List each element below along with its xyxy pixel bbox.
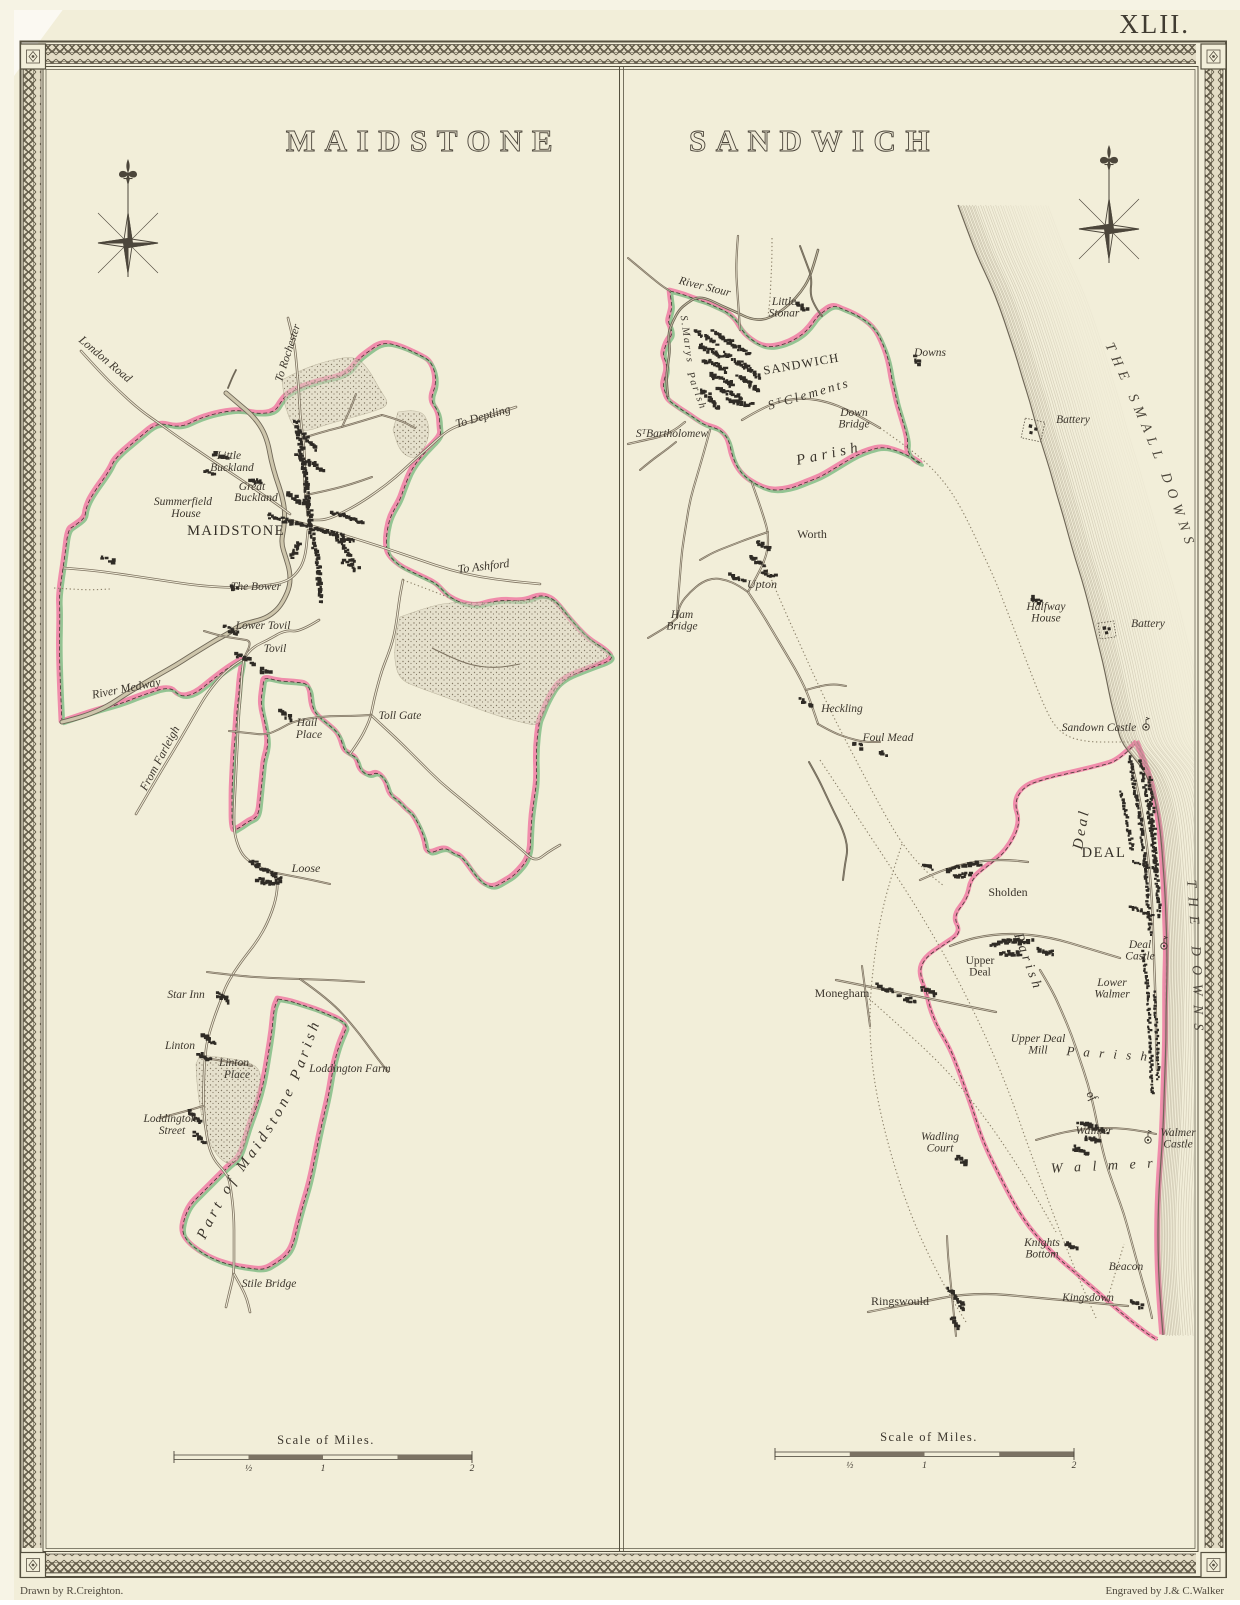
- svg-text:Drawn by R.Creighton.: Drawn by R.Creighton.: [20, 1585, 124, 1597]
- svg-text:Worth: Worth: [797, 527, 827, 541]
- svg-text:House: House: [170, 508, 200, 520]
- svg-text:1: 1: [922, 1461, 927, 1471]
- svg-text:LowerWalmer: LowerWalmer: [1094, 977, 1130, 1001]
- svg-text:HalfwayHouse: HalfwayHouse: [1026, 601, 1067, 625]
- svg-text:Tovil: Tovil: [264, 643, 287, 655]
- svg-text:WalmerCastle: WalmerCastle: [1160, 1127, 1196, 1151]
- svg-text:Heckling: Heckling: [820, 703, 863, 715]
- svg-text:Loose: Loose: [291, 861, 321, 875]
- svg-text:Downs: Downs: [913, 347, 946, 359]
- svg-text:Sholden: Sholden: [988, 885, 1027, 899]
- svg-text:Sandown Castle: Sandown Castle: [1062, 722, 1136, 734]
- svg-text:Toll Gate: Toll Gate: [379, 710, 422, 722]
- svg-text:MAIDSTONE: MAIDSTONE: [187, 523, 285, 539]
- svg-text:Little: Little: [216, 450, 241, 462]
- svg-text:2: 2: [1072, 1461, 1077, 1471]
- svg-text:Battery: Battery: [1056, 414, 1091, 426]
- svg-text:Hail: Hail: [296, 717, 317, 729]
- svg-text:SᵀBartholomew: SᵀBartholomew: [636, 428, 708, 440]
- svg-text:Monegham: Monegham: [815, 986, 870, 1000]
- svg-text:Upton: Upton: [747, 577, 777, 591]
- svg-text:DEAL: DEAL: [1082, 845, 1127, 861]
- svg-text:½: ½: [846, 1460, 853, 1471]
- svg-text:Kingsdown: Kingsdown: [1061, 1292, 1114, 1304]
- svg-text:Lower Tovil: Lower Tovil: [235, 620, 291, 632]
- svg-text:Street: Street: [159, 1125, 186, 1137]
- svg-text:HamBridge: HamBridge: [666, 609, 697, 633]
- svg-text:LittleStonar: LittleStonar: [769, 296, 800, 320]
- svg-text:XLII.: XLII.: [1119, 9, 1190, 39]
- svg-text:UpperDeal: UpperDeal: [966, 955, 995, 979]
- svg-text:Loddington: Loddington: [142, 1113, 196, 1125]
- svg-text:Foul Mead: Foul Mead: [862, 732, 914, 744]
- svg-text:Scale of Miles.: Scale of Miles.: [277, 1433, 375, 1447]
- svg-text:SANDWICH: SANDWICH: [689, 123, 939, 158]
- svg-text:Engraved by J.& C.Walker: Engraved by J.& C.Walker: [1105, 1585, 1224, 1597]
- svg-text:Buckland: Buckland: [234, 492, 278, 504]
- svg-text:Summerfield: Summerfield: [154, 496, 212, 508]
- svg-text:Scale of Miles.: Scale of Miles.: [880, 1430, 978, 1444]
- svg-text:2: 2: [470, 1464, 475, 1474]
- svg-text:DownBridge: DownBridge: [838, 407, 869, 431]
- svg-text:Place: Place: [295, 729, 322, 741]
- svg-text:Stile Bridge: Stile Bridge: [242, 1278, 297, 1290]
- svg-text:1: 1: [321, 1464, 326, 1474]
- svg-text:½: ½: [245, 1463, 252, 1474]
- svg-text:Linton: Linton: [164, 1040, 195, 1052]
- svg-text:Walmer: Walmer: [1076, 1123, 1113, 1137]
- svg-text:Star Inn: Star Inn: [167, 989, 205, 1001]
- svg-text:Loddington Farm: Loddington Farm: [308, 1063, 390, 1075]
- svg-text:MAIDSTONE: MAIDSTONE: [286, 123, 562, 158]
- svg-text:Place: Place: [223, 1069, 250, 1081]
- svg-text:Buckland: Buckland: [210, 462, 254, 474]
- svg-text:The Bower: The Bower: [231, 581, 282, 593]
- svg-text:KnightsBottom: KnightsBottom: [1023, 1237, 1060, 1261]
- svg-text:DealCastle: DealCastle: [1125, 939, 1154, 963]
- svg-text:Battery: Battery: [1131, 618, 1166, 630]
- svg-text:Linton: Linton: [218, 1057, 249, 1069]
- svg-text:Beacon: Beacon: [1109, 1261, 1144, 1273]
- svg-text:Ringswould: Ringswould: [871, 1294, 929, 1308]
